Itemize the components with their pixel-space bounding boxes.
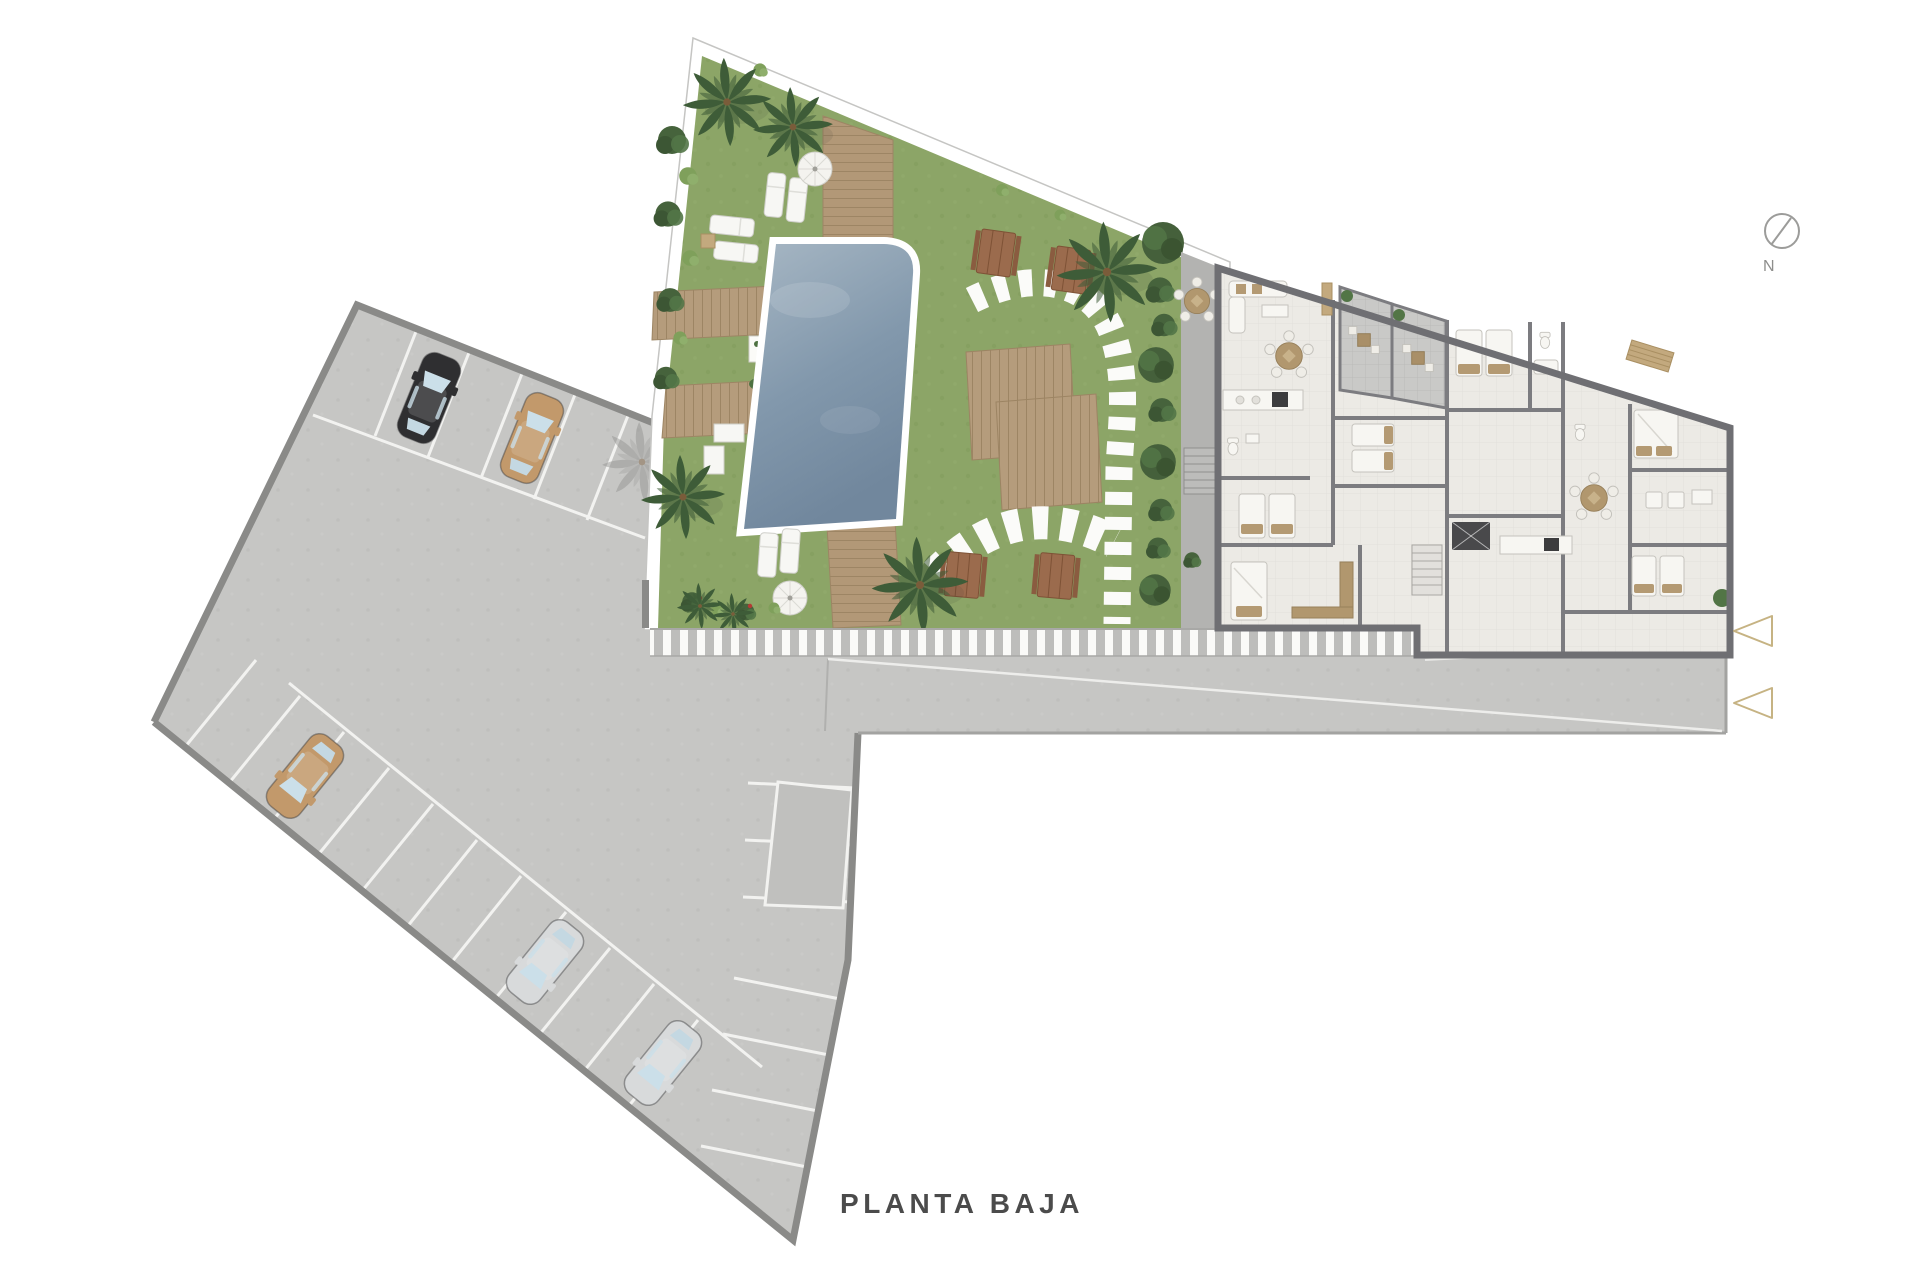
garden <box>641 38 1230 635</box>
compass-label: N <box>1763 258 1775 275</box>
border-wall-stub <box>642 580 649 628</box>
sun-lounger <box>779 528 800 573</box>
plan-title: PLANTA BAJA <box>840 1188 1084 1219</box>
deck-pool-south <box>827 520 901 628</box>
planter-white-1 <box>714 424 744 442</box>
picnic-table <box>1031 552 1081 600</box>
pergola-louvers <box>1626 340 1674 372</box>
side-table <box>701 234 715 248</box>
apartment-building <box>1218 268 1731 655</box>
terrace-1 <box>1340 287 1392 398</box>
deck-top <box>823 116 893 250</box>
reserved-parking-space <box>765 782 852 908</box>
compass-icon: N <box>1763 214 1799 275</box>
promenade-crosswalk <box>650 629 1417 656</box>
deck-square-2 <box>996 394 1102 510</box>
patio <box>1174 252 1221 628</box>
floor-plan-page: N PLANTA BAJA <box>0 0 1920 1280</box>
patio-stairs <box>1184 448 1216 494</box>
entrance-arrow-icon-2 <box>1734 688 1772 718</box>
sun-lounger <box>757 532 778 577</box>
entrance-arrow-icon-1 <box>1734 616 1772 646</box>
elevator <box>1452 522 1490 550</box>
terrace-2 <box>1392 304 1446 408</box>
parasol-icon <box>798 152 832 186</box>
pool-highlight-2 <box>820 406 880 434</box>
floor-plan-canvas: N PLANTA BAJA <box>0 0 1920 1280</box>
pool-highlight <box>770 282 850 318</box>
